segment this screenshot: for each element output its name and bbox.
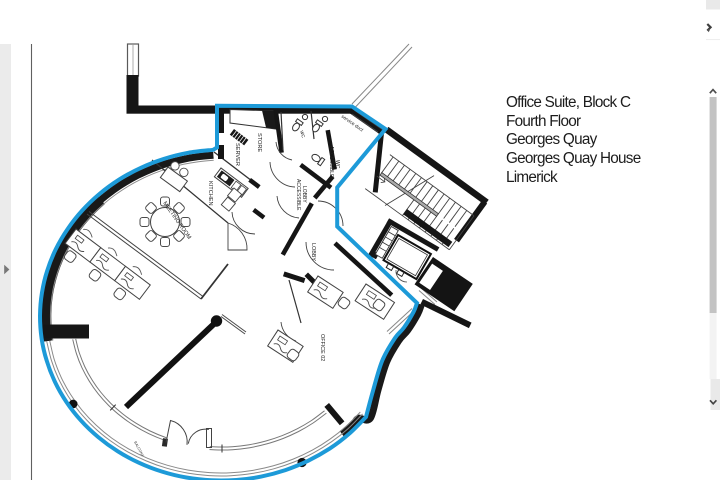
svg-text:ACCESSIBLE: ACCESSIBLE bbox=[328, 146, 334, 178]
svg-text:KITCHEN: KITCHEN bbox=[207, 181, 213, 206]
svg-text:OFFICE 02: OFFICE 02 bbox=[319, 334, 325, 361]
svg-text:SERVER: SERVER bbox=[234, 143, 240, 166]
svg-text:WC: WC bbox=[299, 130, 306, 139]
svg-text:ACCESSIBLE: ACCESSIBLE bbox=[295, 179, 301, 211]
svg-text:WC: WC bbox=[334, 160, 340, 169]
svg-text:LOBBY: LOBBY bbox=[301, 186, 307, 203]
svg-text:STORE: STORE bbox=[256, 133, 262, 152]
